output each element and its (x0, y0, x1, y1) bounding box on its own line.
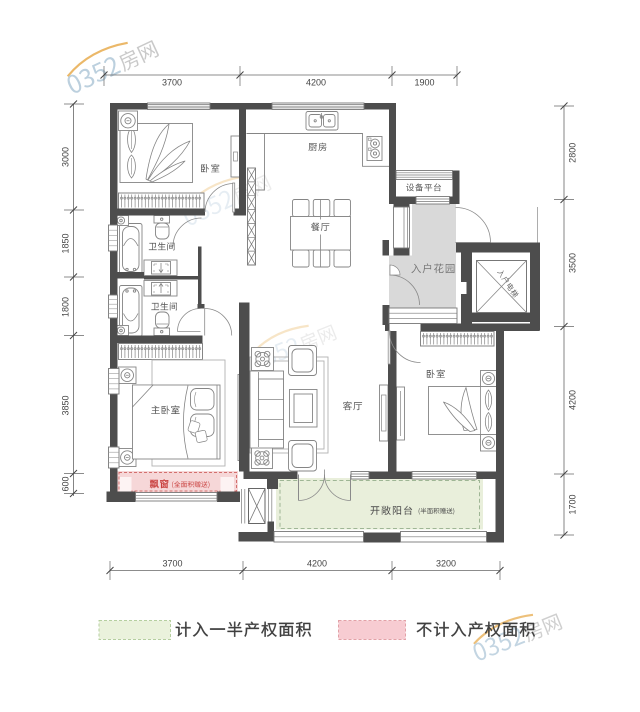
svg-text:3700: 3700 (162, 559, 182, 569)
svg-text:1900: 1900 (414, 78, 434, 88)
svg-text:4200: 4200 (306, 78, 326, 88)
svg-text:1800: 1800 (61, 297, 71, 317)
svg-text:4200: 4200 (307, 559, 327, 569)
svg-text:2800: 2800 (568, 143, 578, 163)
svg-text:600: 600 (61, 476, 71, 491)
svg-text:3500: 3500 (568, 253, 578, 273)
svg-text:3000: 3000 (61, 147, 71, 167)
svg-text:3850: 3850 (61, 395, 71, 415)
svg-text:3200: 3200 (436, 559, 456, 569)
svg-text:4200: 4200 (568, 390, 578, 410)
svg-text:1850: 1850 (61, 233, 71, 253)
svg-text:3700: 3700 (162, 78, 182, 88)
svg-text:1700: 1700 (568, 494, 578, 514)
